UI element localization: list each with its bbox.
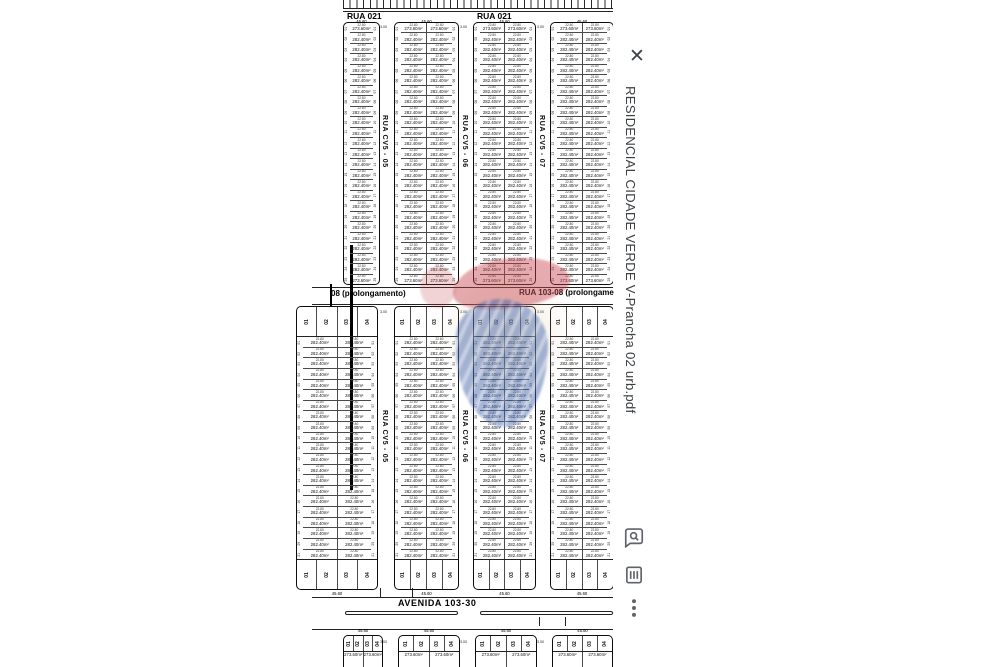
lot: 22.80282.40m²: [337, 401, 372, 411]
lot-row: 22.80282.40m²22.80282.40m²: [401, 179, 452, 189]
lot: 22.80282.40m²: [337, 411, 372, 421]
lot-row: 22.80282.40m²: [350, 53, 373, 63]
lot: 22.80282.40m²: [480, 159, 504, 168]
lot-row: 22.80273.60m²22.80273.60m²: [480, 274, 529, 284]
lot: 22.80282.40m²: [426, 486, 452, 496]
lot: 22.80282.40m²: [426, 264, 452, 273]
lot-row: 22.80282.40m²22.80282.40m²: [401, 357, 452, 368]
lot-row: 22.80273.60m²22.80273.60m²: [557, 274, 607, 284]
lot-row: 22.80282.40m²22.80282.40m²: [480, 116, 529, 126]
lot: 22.80282.40m²: [401, 44, 426, 53]
lot: 22.80282.40m²: [480, 149, 504, 158]
block-width-label: 45.60: [550, 591, 614, 596]
lot: 22.80282.40m²: [350, 149, 373, 158]
lot: 22.80282.40m²: [337, 475, 372, 485]
lot-row: 22.80282.40m²22.80282.40m²: [557, 506, 607, 517]
lot: 03: [429, 636, 444, 651]
lot: 22.80282.40m²: [426, 243, 452, 252]
lot: 22.80282.40m²: [303, 539, 337, 549]
lot-row: 22.80282.40m²: [350, 137, 373, 147]
lot-row: 22.80282.40m²: [350, 190, 373, 200]
lot: 22.80282.40m²: [350, 33, 373, 42]
lot: 22.80282.40m²: [426, 443, 452, 453]
lot-row: 22.80282.40m²: [350, 253, 373, 263]
lot: 22.80282.40m²: [557, 117, 582, 126]
lot-row: 22.80282.40m²22.80282.40m²: [557, 106, 607, 116]
lot: 22.80282.40m²: [557, 212, 582, 221]
lot: 22.80273.60m²: [401, 275, 426, 284]
lot: 22.80282.40m²: [480, 33, 504, 42]
lot: 22.80282.40m²: [504, 149, 529, 158]
lot-row: 22.80282.40m²22.80282.40m²: [401, 95, 452, 105]
lot-row: 22.80282.40m²22.80282.40m²: [480, 179, 529, 189]
lot: 22.80282.40m²: [337, 348, 372, 358]
lot: 22.80282.40m²: [504, 496, 529, 506]
lot: 22.80282.40m²: [350, 201, 373, 210]
lot: 22.80282.40m²: [557, 422, 582, 432]
street-width-label: 3.00: [380, 25, 387, 29]
lot: 03: [363, 636, 373, 651]
lot: 22.80282.40m²: [504, 486, 529, 496]
lot: 22.80282.40m²: [350, 212, 373, 221]
lot: 22.80282.40m²: [504, 337, 529, 347]
lot: 22.80282.40m²: [426, 518, 452, 528]
lot: 22.80282.40m²: [337, 433, 372, 443]
lot: 22.80282.40m²: [582, 222, 608, 231]
lot: 22.80282.40m²: [426, 337, 452, 347]
lot: 22.80282.40m²: [582, 117, 608, 126]
lot-row: 22.80282.40m²: [350, 221, 373, 231]
lot: 22.80282.40m²: [337, 486, 372, 496]
lot: 22.80282.40m²: [401, 170, 426, 179]
lot-row: 22.80282.40m²22.80282.40m²: [303, 357, 371, 368]
document-title: RESIDENCIAL CIDADE VERDE V-Prancha 02 ur…: [623, 86, 638, 413]
lot-row: 22.80282.40m²22.80282.40m²: [480, 169, 529, 179]
overflow-menu-icon: [623, 597, 645, 619]
street-name-label: RUA CV5 - 07: [538, 410, 545, 463]
lot: 22.80282.40m²: [401, 401, 426, 411]
lot-row: 22.80282.40m²22.80282.40m²: [480, 53, 529, 63]
lot-row: 22.80282.40m²: [350, 32, 373, 42]
lot: 22.80282.40m²: [582, 337, 608, 347]
street-width-label: 3.00: [537, 640, 544, 644]
lot: 02: [413, 636, 428, 651]
lot-row: 22.80282.40m²22.80282.40m²: [557, 517, 607, 528]
lot: 04: [357, 560, 377, 589]
lot-row: 22.80282.40m²22.80282.40m²: [480, 190, 529, 200]
lot-row: 22.80282.40m²22.80282.40m²: [557, 549, 607, 560]
lot: 22.80282.40m²: [426, 528, 452, 538]
lot: 01: [395, 560, 410, 589]
lot: 22.80282.40m²: [504, 539, 529, 549]
road-label-rua103-right: RUA 103-08 (prolongamento): [519, 288, 614, 297]
dimension-tick: [539, 617, 540, 626]
page-list-button[interactable]: [621, 562, 647, 588]
lot-row: 22.80282.40m²22.80282.40m²: [480, 400, 529, 411]
lot-row: 22.80282.40m²22.80282.40m²: [401, 74, 452, 84]
lot-row: 22.80282.40m²22.80282.40m²: [401, 253, 452, 263]
lot: 01: [344, 636, 353, 651]
lot: 22.80282.40m²: [504, 159, 529, 168]
lot: 22.80282.40m²: [480, 54, 504, 63]
lot: 22.80282.40m²: [504, 380, 529, 390]
lot: 22.80282.40m²: [557, 191, 582, 200]
lot: 22.80282.40m²: [426, 117, 452, 126]
lot: 22.80282.40m²: [350, 107, 373, 116]
lot-row: 22.80282.40m²22.80282.40m²: [401, 242, 452, 252]
lot: 22.80282.40m²: [504, 222, 529, 231]
lot: 03: [337, 307, 357, 336]
city-block: 0102030401020304050607080910111213141516…: [394, 306, 459, 590]
lot-row: 22.80282.40m²22.80282.40m²: [303, 549, 371, 560]
lot: 22.80282.40m²: [401, 475, 426, 485]
lot-row: 22.80282.40m²22.80282.40m²: [303, 379, 371, 390]
lot-row: 22.80282.40m²22.80282.40m²: [401, 64, 452, 74]
lot: 22.80282.40m²: [401, 107, 426, 116]
lot: 22.80282.40m²: [401, 443, 426, 453]
lot: 01: [474, 560, 489, 589]
lot: 273.60m²: [344, 652, 363, 667]
lot: 22.80282.40m²: [557, 75, 582, 84]
lot: 22.80282.40m²: [582, 411, 608, 421]
lot-row: 22.80282.40m²22.80282.40m²: [401, 368, 452, 379]
lot-row: 22.80282.40m²22.80282.40m²: [401, 495, 452, 506]
lot: 03: [337, 560, 357, 589]
lot: 01: [399, 636, 413, 651]
lot: 22.80282.40m²: [582, 507, 608, 517]
lot-row: 22.80282.40m²22.80282.40m²: [303, 432, 371, 443]
find-in-document-button[interactable]: [621, 524, 647, 550]
lot-row: 22.80282.40m²22.80282.40m²: [401, 464, 452, 475]
lot-row: 22.80282.40m²22.80282.40m²: [557, 357, 607, 368]
lot: 22.80282.40m²: [401, 348, 426, 358]
city-block: 01020304273.60m²273.60m²: [475, 635, 537, 667]
lot: 22.80282.40m²: [401, 65, 426, 74]
lot: 22.80282.40m²: [504, 390, 529, 400]
city-block: 0102030405060708091011121314151617181920…: [473, 22, 536, 285]
lot: 22.80282.40m²: [582, 149, 608, 158]
lot: 22.80282.40m²: [504, 54, 529, 63]
lot: 22.80282.40m²: [337, 422, 372, 432]
lot-row: 22.80282.40m²22.80282.40m²: [480, 453, 529, 464]
lot: 22.80282.40m²: [582, 128, 608, 137]
lot-row: 22.80282.40m²22.80282.40m²: [557, 538, 607, 549]
lot: 22.80282.40m²: [480, 465, 504, 475]
lot-row: 22.80282.40m²22.80282.40m²: [480, 474, 529, 485]
lot: 03: [504, 560, 520, 589]
lot-row: 22.80282.40m²22.80282.40m²: [480, 137, 529, 147]
lot: 22.80282.40m²: [480, 44, 504, 53]
lot: 22.80282.40m²: [504, 411, 529, 421]
lot-row: 22.80282.40m²22.80282.40m²: [480, 549, 529, 560]
lot: 22.80273.60m²: [350, 275, 373, 284]
lot-row: 22.80273.60m²: [350, 23, 373, 32]
lot: 22.80282.40m²: [582, 528, 608, 538]
lot: 22.80273.60m²: [504, 275, 529, 284]
lot: 02: [316, 307, 336, 336]
lot-row: 22.80282.40m²22.80282.40m²: [401, 232, 452, 242]
lot: 22.80282.40m²: [426, 550, 452, 560]
lot: 22.80282.40m²: [582, 454, 608, 464]
plan-drawing[interactable]: RUA 021 RUA 021 08 (prolongamento) RUA 1…: [0, 0, 614, 667]
lot: 22.80282.40m²: [480, 380, 504, 390]
lot: 22.80282.40m²: [557, 138, 582, 147]
lot: 22.80282.40m²: [337, 496, 372, 506]
lot: 03: [426, 307, 442, 336]
lot: 22.80282.40m²: [504, 243, 529, 252]
city-block: 01020304273.60m²273.60m²: [398, 635, 460, 667]
lot: 22.80282.40m²: [426, 54, 452, 63]
lot: 22.80282.40m²: [504, 33, 529, 42]
lot: 22.80282.40m²: [401, 380, 426, 390]
city-block: 0102030401020304050607080910111213141516…: [296, 306, 378, 590]
lot: 22.80282.40m²: [557, 550, 582, 560]
lot: 22.80282.40m²: [480, 96, 504, 105]
lot: 22.80282.40m²: [557, 454, 582, 464]
lot: 22.80282.40m²: [557, 443, 582, 453]
lot-row: 22.80282.40m²: [350, 148, 373, 158]
lot: 22.80282.40m²: [557, 107, 582, 116]
lot: 22.80282.40m²: [582, 138, 608, 147]
lot-row: 22.80282.40m²22.80282.40m²: [480, 389, 529, 400]
lot: 22.80282.40m²: [480, 86, 504, 95]
lot-row: 22.80273.60m²22.80273.60m²: [401, 23, 452, 32]
overflow-menu-button[interactable]: [621, 595, 647, 621]
lot: 22.80282.40m²: [480, 550, 504, 560]
lot-row: 22.80282.40m²22.80282.40m²: [557, 158, 607, 168]
city-block: 0102030405060708091011121314151617181920…: [394, 22, 459, 285]
lot: 22.80282.40m²: [426, 454, 452, 464]
lot: 22.80282.40m²: [504, 443, 529, 453]
lot: 22.80282.40m²: [337, 390, 372, 400]
lot: 22.80282.40m²: [504, 191, 529, 200]
lot-row: 22.80282.40m²: [350, 116, 373, 126]
lot-row: 22.80282.40m²22.80282.40m²: [480, 242, 529, 252]
lot: 22.80282.40m²: [401, 138, 426, 147]
lot-row: 22.80282.40m²22.80282.40m²: [557, 464, 607, 475]
lot: 01: [395, 307, 410, 336]
lot: 22.80282.40m²: [303, 475, 337, 485]
road-edge-line: [343, 8, 614, 9]
lot: 22.80282.40m²: [557, 128, 582, 137]
lot-row: 22.80282.40m²22.80282.40m²: [557, 474, 607, 485]
lot: 03: [506, 636, 521, 651]
lot: 22.80282.40m²: [582, 369, 608, 379]
lot-row: 22.80282.40m²22.80282.40m²: [557, 337, 607, 347]
lot-row: 22.80282.40m²22.80282.40m²: [401, 474, 452, 485]
lot: 04: [442, 560, 458, 589]
lot: 22.80282.40m²: [426, 433, 452, 443]
lot-row: 22.80282.40m²22.80282.40m²: [401, 337, 452, 347]
lot-row: 22.80282.40m²22.80282.40m²: [401, 389, 452, 400]
lot: 22.80282.40m²: [504, 401, 529, 411]
lot: 04: [442, 307, 458, 336]
lot: 22.80282.40m²: [337, 443, 372, 453]
lot-row: 22.80282.40m²22.80282.40m²: [480, 85, 529, 95]
lot-row: 22.80282.40m²: [350, 127, 373, 137]
lot: 22.80282.40m²: [582, 518, 608, 528]
lot: 22.80282.40m²: [557, 264, 582, 273]
lot: 03: [582, 560, 598, 589]
lot: 22.80282.40m²: [557, 180, 582, 189]
lot: 22.80282.40m²: [401, 191, 426, 200]
lot: 22.80282.40m²: [582, 233, 608, 242]
lot: 22.80282.40m²: [582, 390, 608, 400]
lot-row: 22.80282.40m²: [350, 169, 373, 179]
lot: 22.80282.40m²: [557, 337, 582, 347]
lot-row: 22.80282.40m²22.80282.40m²: [303, 464, 371, 475]
lot-row: 22.80282.40m²22.80282.40m²: [557, 169, 607, 179]
lot-row: 22.80282.40m²22.80282.40m²: [303, 442, 371, 453]
lot: 22.80282.40m²: [582, 107, 608, 116]
lot: 22.80282.40m²: [582, 550, 608, 560]
lot-row: 22.80282.40m²22.80282.40m²: [401, 200, 452, 210]
lot-row: 22.80282.40m²: [350, 74, 373, 84]
lot-row: 22.80282.40m²22.80282.40m²: [401, 400, 452, 411]
city-block: 01020304273.60m²273.60m²: [552, 635, 613, 667]
lot: 22.80282.40m²: [504, 528, 529, 538]
lot: 22.80282.40m²: [480, 507, 504, 517]
lot: 22.80282.40m²: [401, 496, 426, 506]
lot: 22.80282.40m²: [426, 465, 452, 475]
lot: 22.80282.40m²: [401, 264, 426, 273]
lot: 22.80282.40m²: [401, 117, 426, 126]
lot: 22.80282.40m²: [350, 180, 373, 189]
lot: 22.80282.40m²: [557, 254, 582, 263]
block-width-label: 45.60: [398, 628, 460, 633]
lot: 04: [520, 560, 536, 589]
lot-row: 22.80282.40m²22.80282.40m²: [401, 549, 452, 560]
lot: 22.80282.40m²: [480, 401, 504, 411]
lot-row: 22.80282.40m²22.80282.40m²: [480, 506, 529, 517]
road-edge-line: [312, 304, 614, 305]
lot-row: 22.80282.40m²22.80282.40m²: [557, 421, 607, 432]
city-block: 01020304273.60m²273.60m²: [343, 635, 383, 667]
lot: 22.80282.40m²: [480, 528, 504, 538]
lot: 22.80273.60m²: [557, 23, 582, 32]
lot-row: 22.80282.40m²22.80282.40m²: [557, 253, 607, 263]
lot: 22.80282.40m²: [582, 422, 608, 432]
lot: 22.80282.40m²: [426, 86, 452, 95]
lot: 02: [316, 560, 336, 589]
lot: 22.80282.40m²: [480, 443, 504, 453]
lot: 22.80282.40m²: [426, 170, 452, 179]
lot-row: 22.80282.40m²22.80282.40m²: [303, 347, 371, 358]
lot: 22.80282.40m²: [480, 369, 504, 379]
lot: 22.80282.40m²: [504, 107, 529, 116]
lot: 22.80282.40m²: [504, 201, 529, 210]
lot: 22.80282.40m²: [582, 348, 608, 358]
lot: 273.60m²: [506, 652, 537, 667]
find-in-document-icon: [623, 526, 645, 548]
lot: 22.80282.40m²: [303, 454, 337, 464]
lot-row: 273.60m²273.60m²: [476, 652, 536, 667]
lot-row: 22.80282.40m²22.80282.40m²: [401, 421, 452, 432]
lot: 22.80282.40m²: [426, 401, 452, 411]
lot: 22.80282.40m²: [303, 486, 337, 496]
lot: 22.80282.40m²: [350, 96, 373, 105]
lot: 04: [521, 636, 536, 651]
lot: 22.80282.40m²: [504, 75, 529, 84]
lot: 22.80282.40m²: [480, 539, 504, 549]
lot: 22.80282.40m²: [557, 528, 582, 538]
lot: 22.80273.60m²: [350, 23, 373, 32]
lot-row: 22.80282.40m²22.80282.40m²: [557, 116, 607, 126]
lot: 22.80282.40m²: [350, 233, 373, 242]
lot: 03: [504, 307, 520, 336]
lot: 22.80282.40m²: [401, 390, 426, 400]
lot: 22.80282.40m²: [480, 233, 504, 242]
lot-row: 22.80282.40m²22.80282.40m²: [557, 242, 607, 252]
lot: 22.80282.40m²: [480, 107, 504, 116]
lot: 22.80282.40m²: [337, 528, 372, 538]
lot: 22.80282.40m²: [426, 380, 452, 390]
lot: 22.80282.40m²: [303, 411, 337, 421]
lot-row: 22.80282.40m²22.80282.40m²: [401, 485, 452, 496]
lot: 22.80282.40m²: [582, 180, 608, 189]
lot: 22.80282.40m²: [480, 75, 504, 84]
lot-row: 22.80282.40m²22.80282.40m²: [557, 368, 607, 379]
lot: 22.80282.40m²: [480, 454, 504, 464]
lot-row: 22.80282.40m²22.80282.40m²: [480, 379, 529, 390]
lot: 22.80282.40m²: [303, 443, 337, 453]
lot: 01: [551, 560, 566, 589]
lot-row: 22.80282.40m²22.80282.40m²: [480, 421, 529, 432]
lot-row: 22.80282.40m²22.80282.40m²: [557, 211, 607, 221]
lot: 22.80282.40m²: [557, 159, 582, 168]
lot: 22.80282.40m²: [337, 337, 372, 347]
lot: 01: [474, 307, 489, 336]
lot-row: 22.80282.40m²22.80282.40m²: [480, 158, 529, 168]
lot: 22.80282.40m²: [303, 507, 337, 517]
lot: 04: [597, 636, 612, 651]
close-button[interactable]: ✕: [623, 42, 651, 70]
lot: 03: [582, 307, 598, 336]
lot: 273.60m²: [363, 652, 383, 667]
lot: 22.80282.40m²: [401, 433, 426, 443]
lot: 22.80282.40m²: [582, 86, 608, 95]
lot: 22.80282.40m²: [350, 222, 373, 231]
lot: 22.80282.40m²: [401, 539, 426, 549]
lot: 22.80273.60m²: [426, 23, 452, 32]
lot: 22.80282.40m²: [350, 117, 373, 126]
lot: 22.80282.40m²: [480, 390, 504, 400]
lot-row: 22.80282.40m²22.80282.40m²: [557, 400, 607, 411]
lot-row: 22.80282.40m²: [350, 232, 373, 242]
lot: 22.80282.40m²: [480, 486, 504, 496]
lot: 22.80282.40m²: [426, 128, 452, 137]
lot: 22.80282.40m²: [504, 138, 529, 147]
lot: 01: [551, 307, 566, 336]
lot: 22.80282.40m²: [582, 191, 608, 200]
lot-row: 22.80282.40m²22.80282.40m²: [401, 116, 452, 126]
lot: 22.80282.40m²: [426, 96, 452, 105]
lot-row: 22.80282.40m²22.80282.40m²: [480, 221, 529, 231]
lot: 22.80282.40m²: [401, 54, 426, 63]
lot: 22.80273.60m²: [557, 275, 582, 284]
lot: 22.80282.40m²: [557, 369, 582, 379]
lot: 22.80282.40m²: [303, 550, 337, 560]
lot: 22.80282.40m²: [426, 539, 452, 549]
lot-row: 22.80282.40m²22.80282.40m²: [401, 506, 452, 517]
lot: 22.80282.40m²: [582, 401, 608, 411]
lot-row: 22.80282.40m²22.80282.40m²: [557, 442, 607, 453]
lot: 22.80282.40m²: [582, 54, 608, 63]
lot-row: 22.80273.60m²: [350, 274, 373, 284]
lot-row: 22.80282.40m²22.80282.40m²: [557, 32, 607, 42]
lot: 22.80282.40m²: [337, 465, 372, 475]
lot: 22.80282.40m²: [303, 380, 337, 390]
